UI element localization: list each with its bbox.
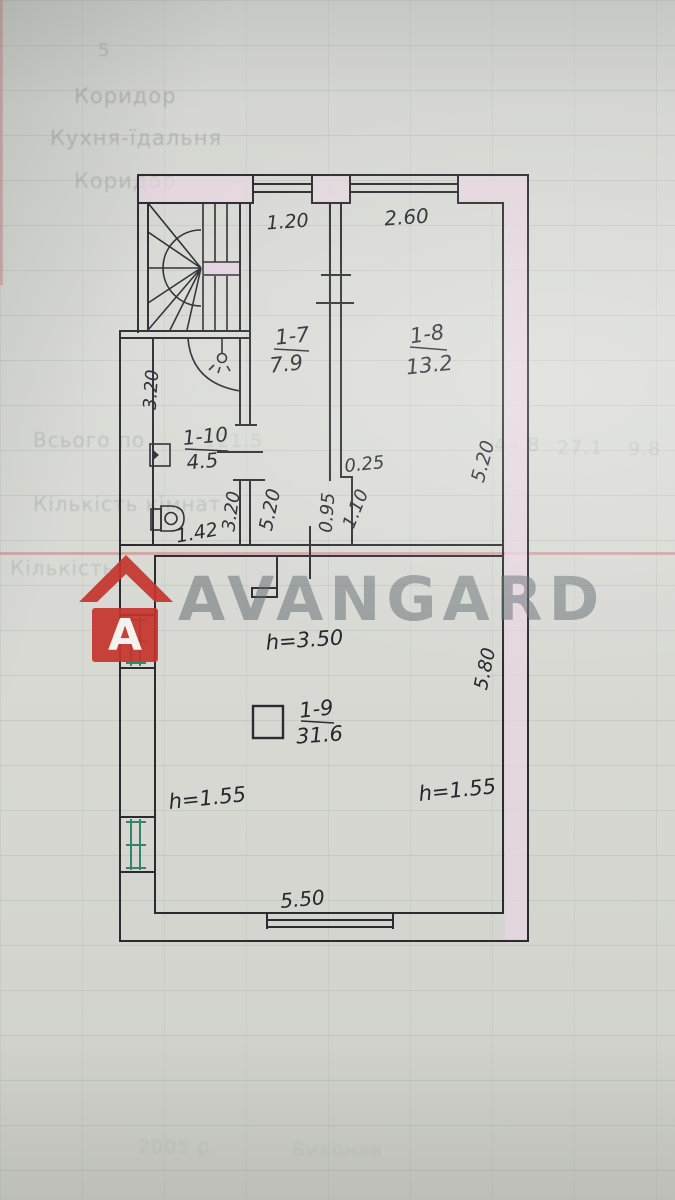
room-110-area: 4.5 (185, 448, 219, 475)
dim-bath-left: 3.20 (140, 369, 164, 410)
dim-corridor: 5.20 (255, 487, 285, 533)
walls (120, 175, 528, 941)
room-18-number: 1-8 (408, 320, 445, 349)
room-110-number: 1-10 (182, 422, 229, 450)
wall-fills (139, 177, 528, 939)
window-left-lower (126, 819, 146, 870)
dim-step: 0.25 (343, 452, 385, 477)
avangard-logo-icon: A (76, 550, 176, 664)
staircase-winder-rays (148, 203, 201, 330)
dim-room19-len: 5.80 (470, 646, 500, 692)
dim-room19-width: 5.50 (279, 885, 325, 913)
dim-window-18: 2.60 (383, 203, 429, 230)
room-17-area: 7.9 (268, 350, 304, 377)
post-square (253, 706, 283, 738)
room-17-number: 1-7 (274, 322, 311, 350)
dim-room18-len: 5.20 (467, 438, 499, 485)
dim-opening-right: 1.10 (339, 486, 373, 531)
lamp-icon (218, 354, 227, 363)
brand-watermark: AVANGARD (178, 564, 605, 635)
room-19-number: 1-9 (298, 695, 335, 722)
scanned-floor-plan-page: 5 Коридор Кухня-їдальня Коридор Всього п… (0, 0, 675, 1200)
dim-opening-left: 0.95 (316, 492, 340, 533)
logo-letter: A (108, 610, 142, 661)
ceiling-height-left: h=1.55 (167, 782, 247, 814)
room-label-bars (185, 347, 447, 723)
dim-bath-width: 1.42 (174, 519, 219, 548)
red-edge-line (0, 0, 3, 285)
room-18-area: 13.2 (405, 351, 454, 380)
dim-window-17: 1.20 (266, 210, 310, 235)
stair-landing (203, 262, 240, 275)
sink-faucet-mark (152, 449, 159, 461)
room-19-area: 31.6 (295, 721, 343, 748)
ceiling-height-right: h=1.55 (417, 774, 497, 806)
toilet-drain (165, 513, 177, 525)
